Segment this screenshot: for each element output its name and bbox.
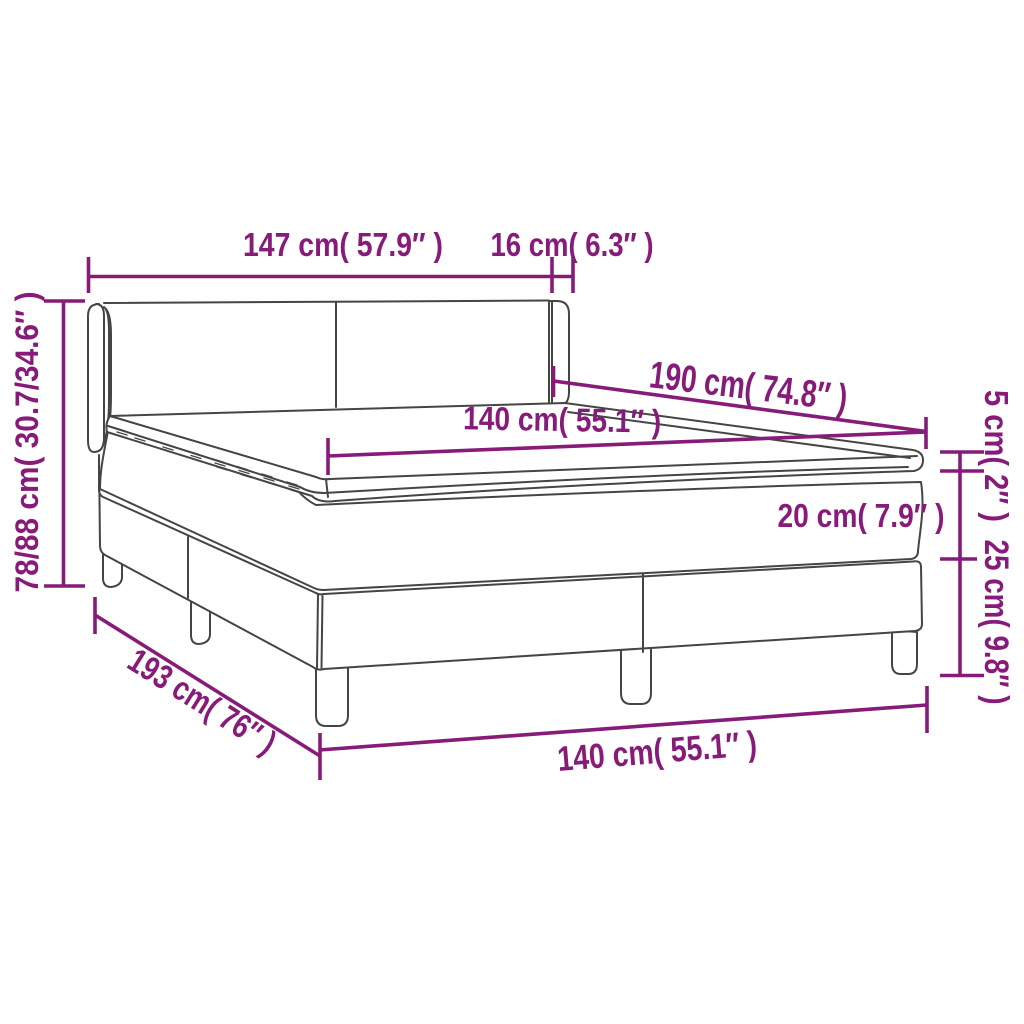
svg-text:140 cm( 55.1″ ): 140 cm( 55.1″ ) <box>556 724 758 779</box>
svg-text:20 cm( 7.9″ ): 20 cm( 7.9″ ) <box>778 497 945 534</box>
svg-text:140 cm( 55.1″ ): 140 cm( 55.1″ ) <box>463 399 662 439</box>
svg-text:25 cm( 9.8″ ): 25 cm( 9.8″ ) <box>977 540 1015 705</box>
svg-text:16 cm( 6.3″ ): 16 cm( 6.3″ ) <box>491 226 654 263</box>
svg-text:5 cm( 2″ ): 5 cm( 2″ ) <box>978 390 1015 522</box>
svg-text:78/88 cm( 30.7/34.6″ ): 78/88 cm( 30.7/34.6″ ) <box>9 292 45 593</box>
svg-text:193 cm( 76″ ): 193 cm( 76″ ) <box>121 641 283 762</box>
svg-text:147 cm( 57.9″ ): 147 cm( 57.9″ ) <box>243 226 443 263</box>
svg-text:190 cm( 74.8″ ): 190 cm( 74.8″ ) <box>647 354 850 420</box>
